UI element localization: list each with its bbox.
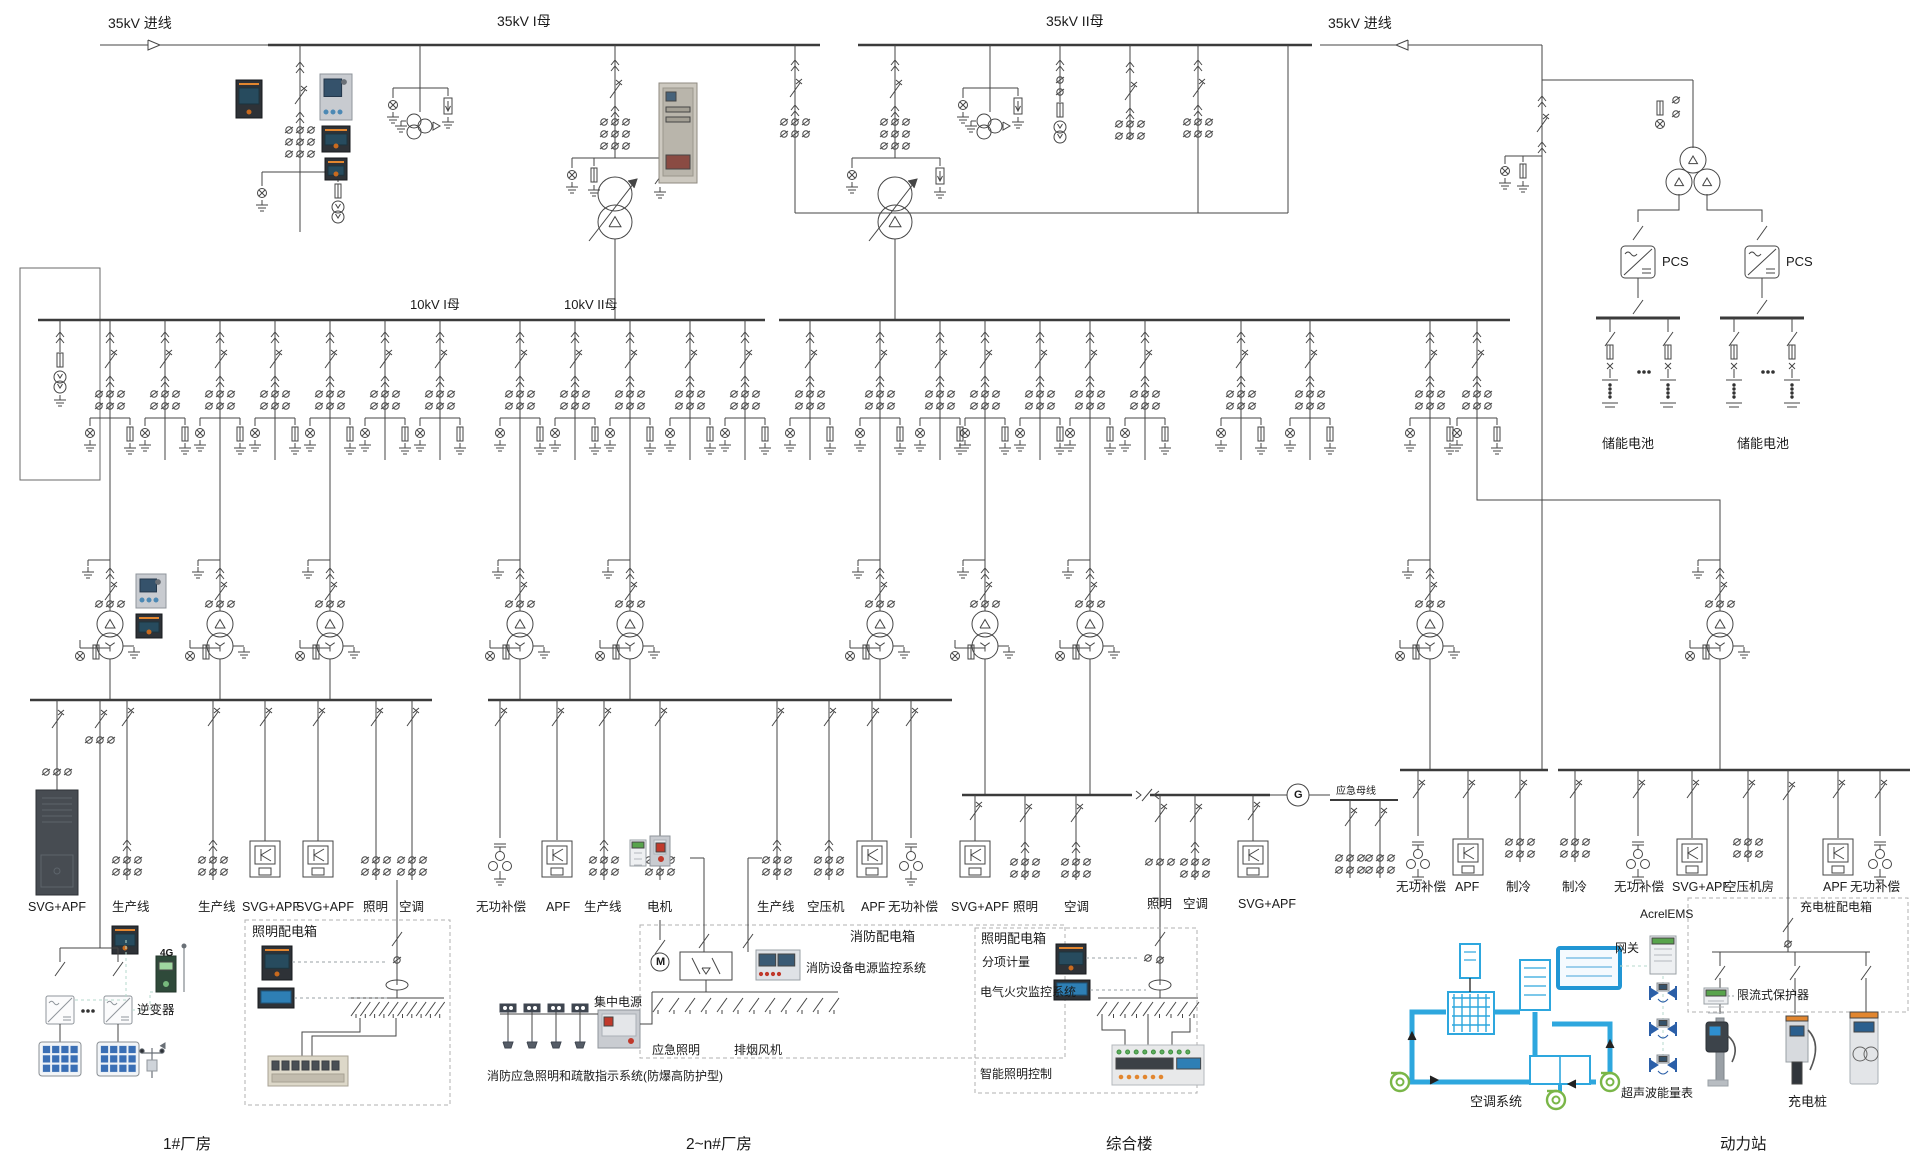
diagram-canvas	[0, 0, 1921, 1171]
lighting-box-meter-photo	[262, 946, 292, 980]
p1-feeder-svgapf2: SVG+APF	[242, 901, 300, 915]
cb-feeder-svgapf1: SVG+APF	[951, 901, 1009, 915]
gateway-4g-photo	[156, 956, 176, 992]
battery-right-label: 储能电池	[1737, 437, 1789, 451]
p1-lighting-box-label: 照明配电箱	[252, 925, 317, 939]
p2-feeder-line2: 生产线	[757, 901, 795, 915]
p2-feeder-var2: 无功补偿	[888, 901, 938, 915]
smart-lighting-module-photo	[1112, 1045, 1204, 1085]
p1-feeder-svgapf1: SVG+APF	[28, 901, 86, 915]
cb-fire-monitor-label: 电气火灾监控系统	[980, 986, 1076, 999]
power-station-section	[1391, 770, 1910, 1109]
ps-ems-label: AcrelEMS	[1640, 908, 1693, 921]
p1-4g-label: 4G	[160, 948, 173, 959]
pv-meter-photo	[112, 926, 138, 954]
protection-relay-photos	[236, 74, 352, 180]
pcs-right-label: PCS	[1786, 255, 1813, 269]
gateway-photo	[1650, 936, 1676, 974]
fire-monitor-photo	[756, 950, 800, 980]
ps-feeder-compressor-room: 空压机房	[1724, 881, 1774, 895]
battery-left-label: 储能电池	[1602, 437, 1654, 451]
ps-feeder-var1: 无功补偿	[1396, 881, 1446, 895]
sub-meter-photo	[1056, 944, 1086, 974]
p2-feeder-line1: 生产线	[584, 901, 622, 915]
cb-generator-symbol: G	[1294, 789, 1303, 801]
plant2-section	[488, 700, 1065, 1058]
ps-feeder-chiller1: 制冷	[1506, 881, 1531, 895]
cb-feeder-lighting2: 照明	[1147, 898, 1172, 912]
single-line-diagram: 35kV 进线 35kV I母 35kV II母 35kV 进线 10kV I母…	[0, 0, 1921, 1171]
p1-title: 1#厂房	[163, 1136, 211, 1153]
bus-35kv-1-label: 35kV I母	[497, 14, 551, 29]
lighting-box-monitor-photo	[258, 988, 294, 1008]
p2-feeder-var1: 无功补偿	[476, 901, 526, 915]
plant2-device-photos	[630, 836, 670, 866]
p2-feeder-compressor: 空压机	[807, 901, 845, 915]
ps-current-limiter-label: 限流式保护器	[1737, 989, 1809, 1002]
main-transformer-1	[589, 177, 637, 241]
ps-hvac-label: 空调系统	[1470, 1095, 1522, 1109]
ps-charger-box-label: 充电桩配电箱	[1800, 901, 1872, 914]
cb-smart-lighting-label: 智能照明控制	[980, 1068, 1052, 1081]
cb-sub-metering-label: 分项计量	[982, 956, 1030, 969]
lighting-module-photo	[268, 1056, 348, 1086]
bus-10kv-1-label: 10kV I母	[410, 298, 460, 312]
p2-title: 2~n#厂房	[686, 1136, 752, 1153]
cb-emergency-bus-label: 应急母线	[1336, 786, 1376, 797]
svg-apf-cabinet-photo	[36, 790, 78, 895]
ps-gateway-label: 网关	[1615, 942, 1639, 955]
ps-feeder-svgapf: SVG+APF	[1672, 881, 1730, 895]
cb-lighting-box-label: 照明配电箱	[981, 932, 1046, 946]
ps-feeder-chiller2: 制冷	[1562, 881, 1587, 895]
p2-fire-monitor-label: 消防设备电源监控系统	[806, 962, 926, 975]
ps-feeder-apf2: APF	[1823, 881, 1847, 895]
incoming-35kv-right	[1320, 40, 1542, 50]
p1-feeder-hvac: 空调	[399, 901, 424, 915]
dc-panel-cabinet-photo	[659, 83, 697, 183]
main-transformer-2	[869, 177, 917, 241]
p1-feeder-line1: 生产线	[112, 901, 150, 915]
bus-10kv-2-label: 10kV II母	[564, 298, 617, 312]
ps-feeder-apf1: APF	[1455, 881, 1479, 895]
p2-fire-box-label: 消防配电箱	[850, 930, 915, 944]
p2-central-power-label: 集中电源	[594, 996, 642, 1009]
ps-ultrasonic-meter-label: 超声波能量表	[1621, 1087, 1693, 1100]
central-power-photo	[598, 1010, 640, 1048]
ems-monitor-photo	[1558, 948, 1620, 988]
ps-feeder-var3: 无功补偿	[1850, 881, 1900, 895]
p2-feeder-motor: 电机	[647, 901, 672, 915]
cb-feeder-lighting1: 照明	[1013, 901, 1038, 915]
pcs-left-label: PCS	[1662, 255, 1689, 269]
p2-smoke-fan-label: 排烟风机	[734, 1044, 782, 1057]
incoming-right-label: 35kV 进线	[1328, 16, 1392, 31]
p2-feeder-apf1: APF	[546, 901, 570, 915]
ps-title: 动力站	[1720, 1136, 1767, 1153]
current-limiter-photo	[1704, 988, 1728, 1013]
p2-emergency-lighting-label: 应急照明	[652, 1044, 700, 1057]
incoming-35kv-left	[100, 40, 268, 50]
charging-pile-photos	[1706, 1012, 1878, 1086]
p2-fire-system-label: 消防应急照明和疏散指示系统(防爆高防护型)	[487, 1070, 723, 1083]
ps-feeder-var2: 无功补偿	[1614, 881, 1664, 895]
p1-feeder-lighting: 照明	[363, 901, 388, 915]
cb-title: 综合楼	[1106, 1136, 1153, 1153]
p2-motor-symbol: M	[656, 956, 665, 968]
feeder-relay-photos	[136, 574, 166, 638]
p1-inverter-label: 逆变器	[137, 1004, 175, 1018]
bus-35kv-2-label: 35kV II母	[1046, 14, 1104, 29]
p1-feeder-line2: 生产线	[198, 901, 236, 915]
storage-section	[1499, 45, 1804, 770]
ps-charging-pile-label: 充电桩	[1788, 1095, 1827, 1109]
cb-feeder-hvac2: 空调	[1183, 898, 1208, 912]
cb-feeder-svgapf2: SVG+APF	[1238, 898, 1296, 912]
p2-feeder-apf2: APF	[861, 901, 885, 915]
p1-feeder-svgapf3: SVG+APF	[296, 901, 354, 915]
cb-feeder-hvac1: 空调	[1064, 901, 1089, 915]
incoming-left-label: 35kV 进线	[108, 16, 172, 31]
